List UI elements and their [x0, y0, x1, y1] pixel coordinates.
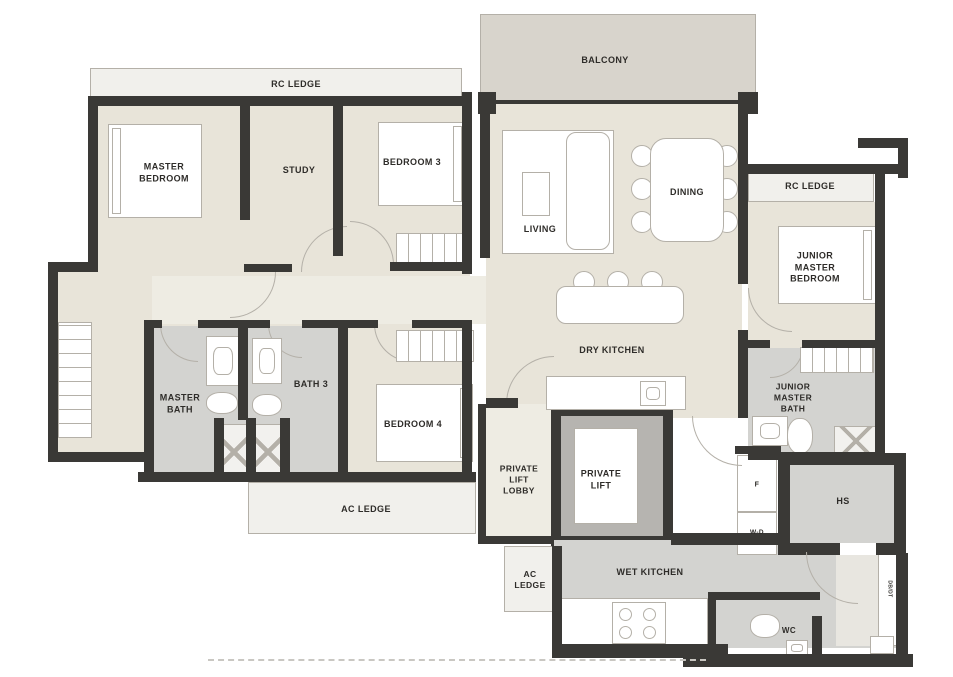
- wall-segment: [478, 92, 496, 114]
- wall-segment: [683, 654, 913, 667]
- corner-vent: [870, 636, 894, 654]
- wall-segment: [244, 264, 292, 272]
- sink-basin: [646, 387, 660, 401]
- wall-segment: [748, 164, 898, 174]
- junior-bath-sink: [752, 416, 788, 446]
- wall-segment: [344, 320, 378, 328]
- master-bath-toilet: [206, 392, 238, 414]
- sink-basin: [259, 348, 276, 374]
- ac-ledge-left: [248, 482, 476, 534]
- wall-segment: [898, 140, 908, 178]
- wall-segment: [462, 324, 472, 482]
- junior-bath-heater: [787, 418, 813, 454]
- household-shelter-inner: [790, 465, 894, 543]
- balcony: [480, 14, 756, 102]
- private-lift-lobby-floor: [482, 404, 552, 540]
- bath3-sink: [252, 338, 282, 384]
- dry-kitchen-sink: [640, 381, 666, 406]
- wall-segment: [240, 96, 250, 220]
- fridge-box: [737, 455, 777, 512]
- wall-segment: [48, 452, 152, 462]
- wall-segment: [738, 92, 748, 284]
- wall-segment: [238, 328, 248, 420]
- wall-segment: [246, 418, 256, 482]
- master-bed: [108, 124, 202, 218]
- bedroom3-cabinet: [396, 233, 472, 265]
- wall-segment: [333, 96, 343, 256]
- wall-segment: [735, 446, 781, 454]
- wall-segment: [478, 536, 554, 544]
- wall-segment: [462, 92, 472, 274]
- stove-burner: [643, 626, 656, 639]
- wall-segment: [708, 592, 820, 600]
- wall-segment: [875, 348, 885, 460]
- wall-segment: [480, 100, 756, 104]
- wall-segment: [198, 320, 248, 328]
- wall-segment: [48, 262, 58, 462]
- bed-headboard: [453, 126, 462, 202]
- bath3-toilet: [252, 394, 282, 416]
- wall-segment: [875, 174, 885, 348]
- floor-plan: RC LEDGEBALCONYMASTER BEDROOMSTUDYBEDROO…: [0, 0, 953, 677]
- wall-segment: [896, 553, 908, 657]
- wet-kitchen-door: [692, 416, 742, 466]
- wall-segment: [344, 472, 476, 482]
- kitchen-island: [556, 286, 684, 324]
- db-dt-strip: [878, 548, 898, 646]
- wall-segment: [480, 104, 490, 258]
- wall-segment: [390, 262, 472, 271]
- wall-segment: [88, 96, 98, 272]
- wall-segment: [671, 533, 778, 545]
- wall-segment: [748, 340, 770, 348]
- wall-segment: [144, 320, 154, 482]
- junior-bed: [778, 226, 876, 304]
- bed-headboard: [863, 230, 872, 300]
- wall-segment: [478, 404, 486, 544]
- bedroom4-bed: [376, 384, 473, 462]
- stove-burner: [619, 626, 632, 639]
- private-lift-cab: [574, 428, 638, 524]
- wall-segment: [486, 398, 518, 408]
- wall-segment: [144, 320, 162, 328]
- wall-segment: [802, 340, 882, 348]
- wall-segment: [708, 592, 716, 666]
- sink-basin: [213, 347, 232, 376]
- wall-segment: [246, 320, 270, 328]
- wall-segment: [88, 96, 472, 106]
- ac-ledge-small: [504, 546, 556, 612]
- corridor: [150, 276, 486, 324]
- wall-segment: [214, 418, 224, 482]
- stove-burner: [619, 608, 632, 621]
- rc-ledge-right: [748, 172, 874, 202]
- wall-segment: [412, 320, 472, 328]
- junior-wardrobe: [800, 347, 874, 373]
- tv-console: [522, 172, 550, 216]
- stove: [612, 602, 666, 644]
- wall-segment: [552, 546, 562, 646]
- master-bath-sink: [206, 336, 240, 386]
- wall-segment: [280, 418, 290, 482]
- wall-segment: [338, 324, 348, 474]
- walkin-wardrobe: [58, 322, 92, 438]
- dining-table: [650, 138, 724, 242]
- sink-basin: [791, 644, 803, 652]
- bedroom3-bed: [378, 122, 466, 206]
- bed-headboard: [112, 128, 121, 214]
- wall-segment: [738, 330, 748, 418]
- sink-basin: [760, 423, 780, 440]
- sofa: [566, 132, 610, 250]
- boundary-dashed-line: [208, 659, 706, 661]
- stove-burner: [643, 608, 656, 621]
- wall-segment: [812, 616, 822, 660]
- wall-segment: [138, 472, 350, 482]
- wc-toilet: [750, 614, 780, 638]
